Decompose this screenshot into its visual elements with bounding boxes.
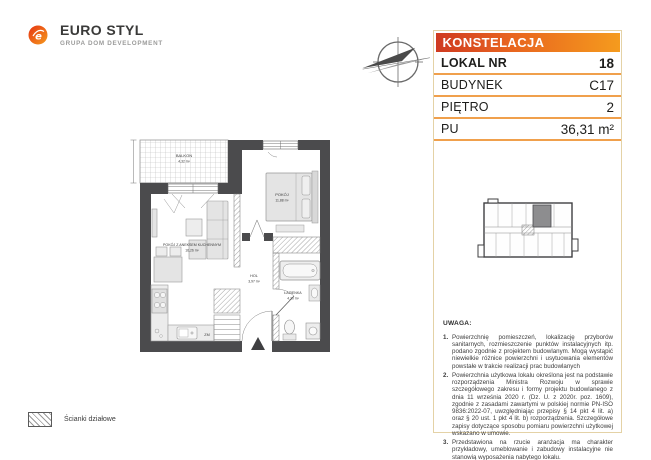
row-label: LOKAL NR <box>441 56 507 70</box>
building-key-plan <box>476 197 580 263</box>
bathroom-fixtures <box>280 261 320 340</box>
highlighted-unit <box>533 205 551 227</box>
room-label-balkon: BALKON <box>176 153 192 158</box>
note-item: Powierzchnię pomieszczeń, lokalizację pr… <box>443 334 613 370</box>
dishwasher-label: ZM <box>204 333 209 337</box>
notes-list: Powierzchnię pomieszczeń, lokalizację pr… <box>443 334 613 460</box>
plan-sheet: e EURO STYL GRUPA DOM DEVELOPMENT KONSTE… <box>0 0 651 460</box>
dining-table <box>154 257 182 282</box>
row-label: PU <box>441 122 459 136</box>
bed <box>266 171 318 223</box>
eurostyl-flame-icon: e <box>28 25 48 45</box>
chair <box>156 247 167 256</box>
bedroom-window <box>263 141 298 157</box>
info-row-pietro: PIĘTRO 2 <box>434 97 621 119</box>
apartment-floor-plan: BALKON 4,32 m² POKÓJ 11,88 m² POKÓJ Z AN… <box>130 137 330 352</box>
row-value: 2 <box>606 100 614 115</box>
notes-section: UWAGA: Powierzchnię pomieszczeń, lokaliz… <box>443 320 613 460</box>
row-value: 18 <box>599 56 614 71</box>
legend: Ścianki działowe <box>28 412 116 427</box>
room-label-hol: HOL <box>250 274 258 278</box>
room-area-lazienka: 4,20 m² <box>287 297 299 301</box>
note-item: Przedstawiona na rzucie aranżacja ma cha… <box>443 439 613 460</box>
stair-core <box>522 225 534 235</box>
tv-bench <box>152 209 157 237</box>
bedroom-bench <box>276 225 304 232</box>
sofa <box>207 201 228 259</box>
room-label-pokoj: POKÓJ <box>275 192 289 197</box>
chair <box>170 247 181 256</box>
info-row-lokal-nr: LOKAL NR 18 <box>434 53 621 75</box>
row-label: BUDYNEK <box>441 78 503 92</box>
unit-info-panel: KONSTELACJA LOKAL NR 18 BUDYNEK C17 PIĘT… <box>433 30 622 433</box>
north-arrow-icon <box>360 26 434 92</box>
row-label: PIĘTRO <box>441 100 489 114</box>
hall-closets <box>214 289 240 341</box>
notes-heading: UWAGA: <box>443 320 613 328</box>
legend-label: Ścianki działowe <box>64 416 116 423</box>
row-value: 36,31 m² <box>561 122 614 137</box>
brand-tagline: GRUPA DOM DEVELOPMENT <box>60 40 163 47</box>
room-area-pokoj: 11,88 m² <box>275 199 289 203</box>
toilet <box>283 334 296 340</box>
room-label-lazienka: ŁAZIENKA <box>284 291 302 295</box>
svg-text:e: e <box>35 32 42 43</box>
stove <box>152 289 167 313</box>
room-label-pokoj-aneks: POKÓJ Z ANEKSEM KUCHENNYM <box>163 242 221 247</box>
note-item: Powierzchnia użytkowa lokalu określona j… <box>443 372 613 437</box>
entrance-marker <box>251 337 265 350</box>
developer-logo: e EURO STYL GRUPA DOM DEVELOPMENT <box>28 23 163 47</box>
row-value: C17 <box>589 78 614 93</box>
room-area-pokoj-aneks: 16,26 m² <box>185 249 199 253</box>
coffee-table <box>186 219 202 236</box>
project-name-header: KONSTELACJA <box>436 33 620 52</box>
living-room-furniture <box>152 195 228 282</box>
info-row-budynek: BUDYNEK C17 <box>434 75 621 97</box>
brand-name: EURO STYL <box>60 23 163 38</box>
info-row-pu: PU 36,31 m² <box>434 119 621 141</box>
room-area-hol: 3,97 m² <box>248 280 260 284</box>
room-area-balkon: 4,32 m² <box>178 160 190 164</box>
dimension-line <box>131 140 137 183</box>
partition-wall-swatch <box>28 412 52 427</box>
